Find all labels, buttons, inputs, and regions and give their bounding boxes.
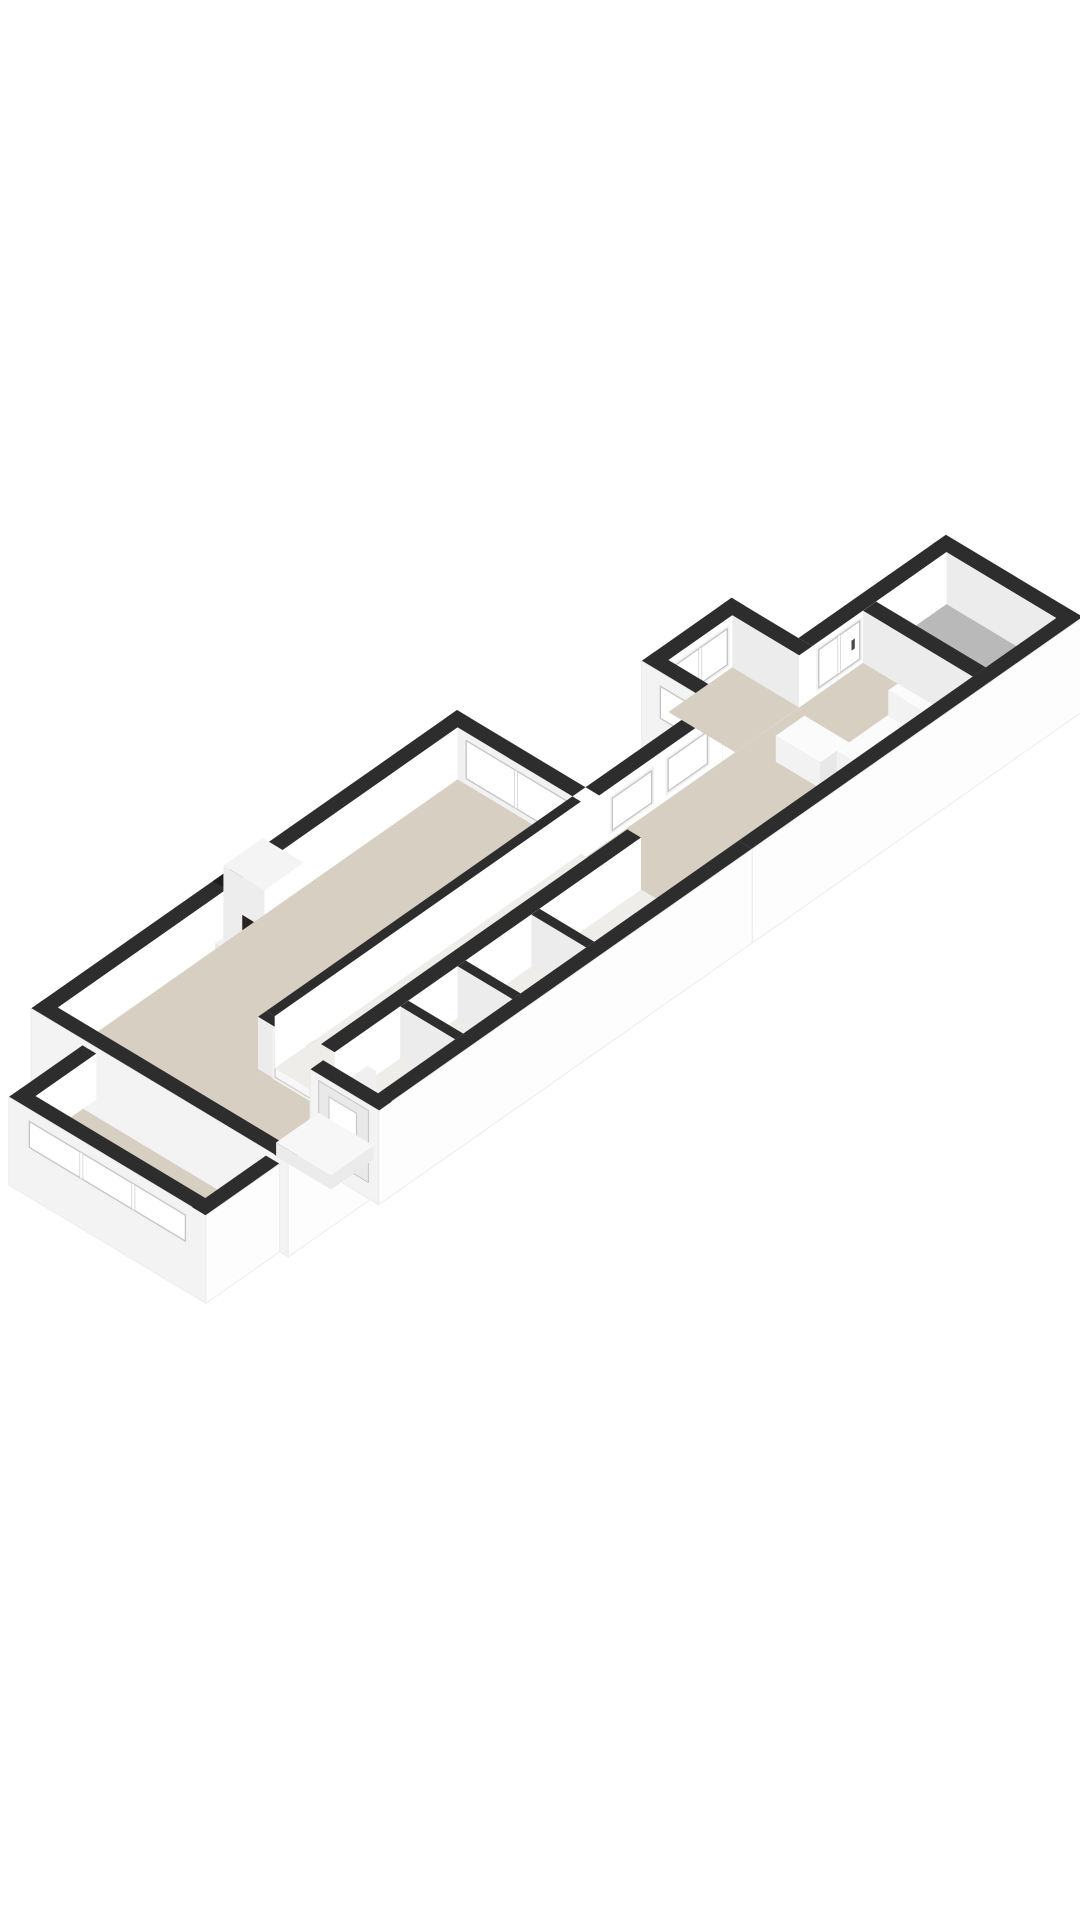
floor-plan-3d (0, 0, 1080, 1920)
bay-window-mullion (132, 1183, 135, 1211)
living-east-window-mullion (514, 770, 517, 810)
bay-window-mullion (80, 1152, 83, 1180)
floor-plan-page (0, 0, 1080, 1920)
kitchen-window-door-mullion (838, 634, 841, 674)
